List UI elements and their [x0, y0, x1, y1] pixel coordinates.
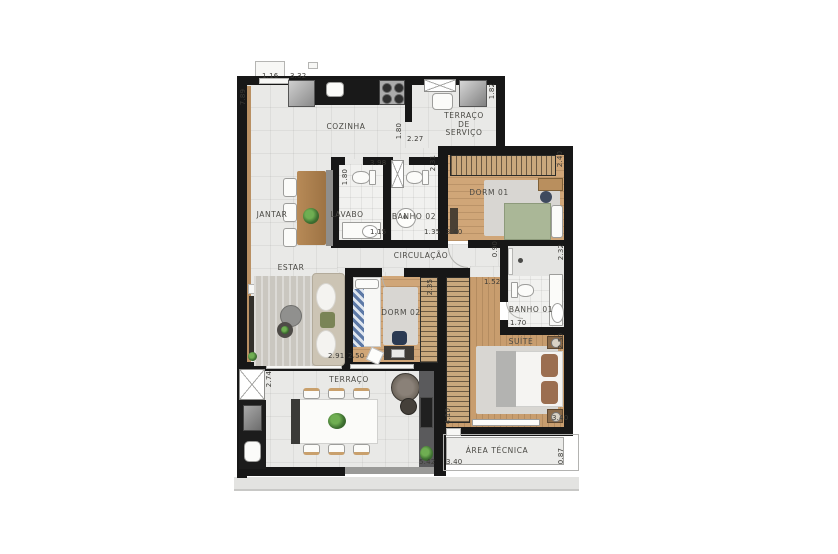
dimension-label: 3.98: [370, 159, 386, 167]
room-label-estar: ESTAR: [278, 264, 305, 273]
suite-pillow-1: [541, 354, 558, 377]
dimension-label: 1.80: [341, 165, 349, 189]
wall-banho01-left-a: [500, 240, 508, 302]
dimension-label: 4.10: [444, 404, 452, 428]
room-label-area-tecnica: ÁREA TÉCNICA: [466, 447, 529, 456]
estar-floor-plant: [248, 352, 257, 361]
dorm02-pillow: [355, 279, 379, 289]
banho01-shower-head: [518, 258, 523, 263]
wall-hall-bottom-b: [404, 268, 470, 277]
refrigerator: [288, 80, 315, 107]
room-label-suite: SUÍTE: [509, 338, 534, 347]
dorm02-laptop: [391, 349, 405, 358]
banho02-shower-door: [391, 160, 404, 188]
banho02-toilet-bowl: [406, 171, 423, 184]
wall-hall-top-a: [331, 240, 448, 248]
dimension-label: 3.40: [446, 458, 462, 466]
burner-4: [394, 94, 404, 104]
terrace-appliance-tower: [420, 397, 433, 428]
dimension-label: 1.16: [262, 72, 278, 80]
wall-dorm01-top: [438, 146, 573, 155]
terrace-chair-b3: [353, 444, 370, 455]
washing-machine: [459, 80, 487, 107]
terrace-chair-b1: [303, 444, 320, 455]
terrace-chair-t1: [303, 388, 320, 399]
kitchen-sink: [326, 82, 344, 97]
terrace-table-plant: [328, 413, 346, 429]
suite-bench: [472, 419, 540, 426]
dimension-label: 1.70: [510, 319, 526, 327]
coffee-table-plant: [281, 326, 289, 334]
dimension-label: 2.50: [348, 352, 364, 360]
dimension-label: 1.35: [424, 228, 440, 236]
wall-banho01-bottom: [500, 327, 564, 335]
dorm02-chair: [392, 331, 407, 345]
dimension-label: 2.32: [557, 240, 565, 264]
dimension-label: 2.35: [426, 275, 434, 299]
room-label-banho01: BANHO 01: [509, 306, 553, 315]
burner-1: [382, 83, 392, 93]
dimension-label: 7.89: [239, 85, 247, 109]
room-label-jantar: JANTAR: [257, 211, 288, 220]
dorm01-bed-pillow: [551, 205, 563, 238]
dorm01-desk-chair: [540, 191, 552, 203]
eave-slab-strip: [234, 477, 579, 491]
dimension-label: 2.27: [407, 135, 423, 143]
room-label-lavabo: LAVABO: [330, 211, 363, 220]
banho02-toilet-tank: [422, 170, 429, 185]
dimension-label: 2.50: [557, 329, 565, 353]
service-cabinet: [424, 79, 456, 92]
room-label-circulacao: CIRCULAÇÃO: [394, 252, 449, 261]
terrace-chair-t3: [353, 388, 370, 399]
dimension-label: 1.15: [370, 228, 386, 236]
dimension-label: 3.32: [290, 72, 306, 80]
floor-plan: COZINHA TERRAÇO DE SERVIÇO JANTAR LAVABO…: [0, 0, 838, 554]
room-label-dorm02: DORM 02: [381, 309, 421, 318]
terrace-basin: [243, 405, 262, 431]
dorm01-bed-duvet: [504, 203, 551, 240]
room-label-terraco: TERRAÇO: [329, 376, 369, 385]
lavabo-toilet-bowl: [352, 171, 370, 184]
laundry-tub: [432, 93, 453, 110]
room-label-cozinha: COZINHA: [326, 123, 365, 132]
room-label-banho02: BANHO 02: [392, 213, 436, 222]
table-plant: [303, 208, 319, 224]
sofa-pillow-1: [316, 283, 336, 311]
dorm02-bed-runner: [353, 289, 364, 347]
dimension-label: 3.40: [552, 414, 568, 422]
dimension-label: 1.82: [488, 79, 496, 103]
dining-bench: [326, 170, 333, 246]
dimension-label: 0.87: [557, 444, 565, 468]
sofa-cushion-green: [320, 312, 335, 328]
terrace-railing: [345, 467, 434, 474]
suite-pillow-2: [541, 381, 558, 404]
lavabo-toilet-tank: [369, 170, 376, 185]
dimension-label: 3.40: [446, 228, 462, 236]
banho01-toilet-bowl: [517, 284, 534, 297]
dining-chair-3: [283, 228, 297, 247]
dimension-label: 5.42: [419, 458, 435, 466]
dimension-label: 0.90: [491, 237, 499, 261]
dimension-label: 2.40: [556, 147, 564, 171]
dining-chair-1: [283, 178, 297, 197]
dimension-label: 1.52: [484, 278, 500, 286]
dimension-label: 1.80: [395, 119, 403, 143]
area-tecnica-box: [446, 428, 461, 436]
burner-3: [382, 94, 392, 104]
suite-wardrobe: [446, 277, 470, 423]
grill-small: [400, 398, 417, 415]
terrace-sink: [244, 441, 261, 462]
dimension-label: 2.31: [429, 151, 437, 175]
wall-service-kitchen-stub: [405, 76, 412, 122]
wall-vent: [308, 62, 318, 69]
room-label-dorm01: DORM 01: [469, 189, 509, 198]
terrace-duct: [239, 369, 265, 400]
room-label-servico: TERRAÇO DE SERVIÇO: [444, 112, 484, 138]
terrace-table-cabinet: [291, 399, 300, 444]
wall-right: [564, 146, 573, 436]
banho01-shower-area: [508, 246, 564, 276]
terrace-chair-b2: [328, 444, 345, 455]
dorm01-desk: [538, 178, 563, 191]
sliding-door-dorm02: [350, 364, 414, 369]
suite-bed-throw: [496, 351, 516, 407]
terrace-chair-t2: [328, 388, 345, 399]
dimension-label: 2.74: [265, 367, 273, 391]
banho01-shower-glass: [508, 248, 513, 275]
burner-2: [394, 83, 404, 93]
wall-service-right: [496, 76, 505, 154]
dorm01-wardrobe: [450, 155, 556, 176]
dimension-label: 2.91: [328, 352, 344, 360]
